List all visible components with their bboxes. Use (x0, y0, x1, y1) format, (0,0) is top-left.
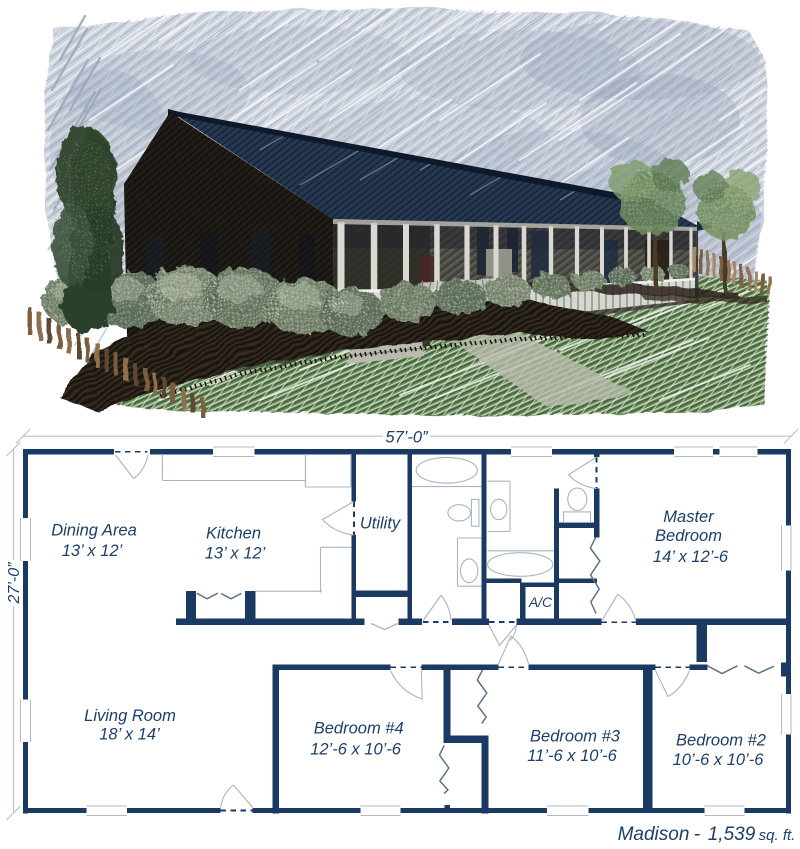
svg-text:Madison: Madison (618, 824, 690, 845)
svg-text:Bedroom #4: Bedroom #4 (314, 720, 404, 738)
svg-text:27’-0”: 27’-0” (6, 562, 23, 605)
svg-text:Master: Master (663, 508, 715, 526)
svg-text:10’-6 x 10’-6: 10’-6 x 10’-6 (673, 751, 765, 769)
svg-text:Dining Area: Dining Area (51, 522, 137, 540)
svg-text:14’ x 12’-6: 14’ x 12’-6 (653, 548, 729, 566)
svg-text:Bedroom #2: Bedroom #2 (676, 732, 766, 750)
svg-text:Bedroom #3: Bedroom #3 (530, 728, 621, 746)
svg-text:Bedroom: Bedroom (655, 527, 722, 545)
svg-text:Living Room: Living Room (84, 707, 176, 725)
svg-text:1,539: 1,539 (708, 824, 756, 845)
svg-text:-: - (694, 823, 701, 845)
svg-text:12’-6 x 10’-6: 12’-6 x 10’-6 (310, 741, 402, 759)
svg-text:Kitchen: Kitchen (206, 525, 261, 543)
svg-text:11’-6 x 10’-6: 11’-6 x 10’-6 (527, 747, 617, 765)
svg-text:Utility: Utility (360, 515, 402, 533)
svg-text:57’-0”: 57’-0” (385, 428, 429, 446)
svg-text:13’ x 12’: 13’ x 12’ (205, 545, 266, 563)
svg-text:A/C: A/C (528, 594, 553, 610)
svg-text:18’ x 14’: 18’ x 14’ (99, 726, 160, 744)
svg-text:sq. ft.: sq. ft. (759, 827, 796, 844)
svg-text:13’ x 12’: 13’ x 12’ (62, 542, 123, 560)
